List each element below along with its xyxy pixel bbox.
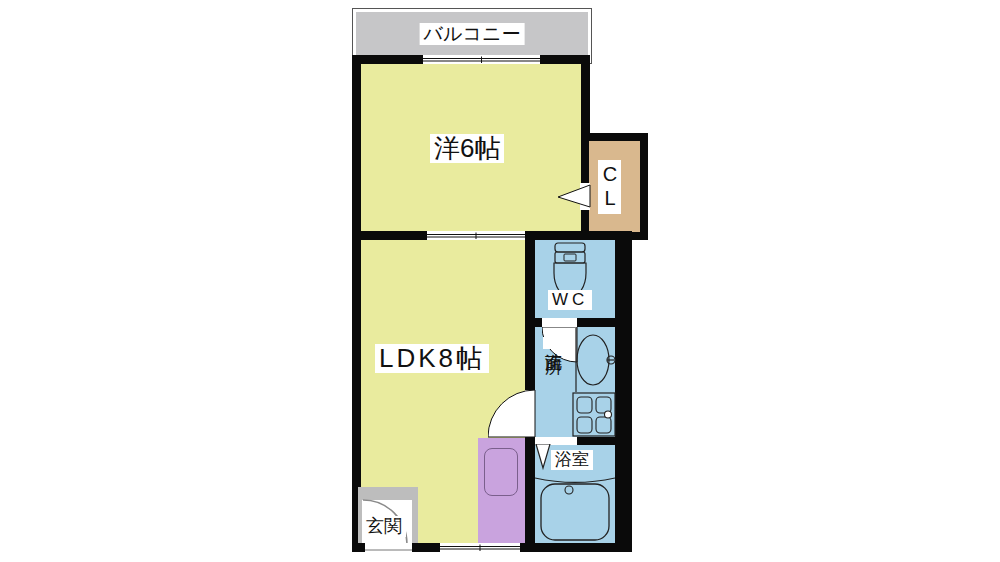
door-swing-icon — [488, 390, 536, 438]
toilet-label: WC — [548, 290, 592, 310]
window-icon — [440, 543, 520, 552]
sliding-door-icon — [427, 231, 525, 240]
kitchen-counter — [478, 438, 525, 543]
closet-label: CL — [598, 160, 621, 214]
window-icon — [423, 55, 540, 64]
kitchen-sink-icon — [484, 448, 518, 496]
washing-machine-icon — [572, 392, 616, 437]
entrance-door-opening — [365, 543, 412, 552]
toilet-door-opening — [542, 318, 577, 327]
entrance-label: 玄関 — [362, 516, 406, 537]
washroom-label: 洗面所 — [543, 337, 563, 349]
floor-plan: バルコニー CL — [0, 0, 1000, 562]
balcony-label: バルコニー — [420, 23, 525, 45]
bathtub-icon — [535, 466, 615, 543]
sink-icon — [574, 328, 616, 394]
door-swing-icon — [558, 182, 591, 210]
western-room-label: 洋6帖 — [430, 134, 504, 163]
ldk-label: LDK8帖 — [375, 344, 489, 373]
